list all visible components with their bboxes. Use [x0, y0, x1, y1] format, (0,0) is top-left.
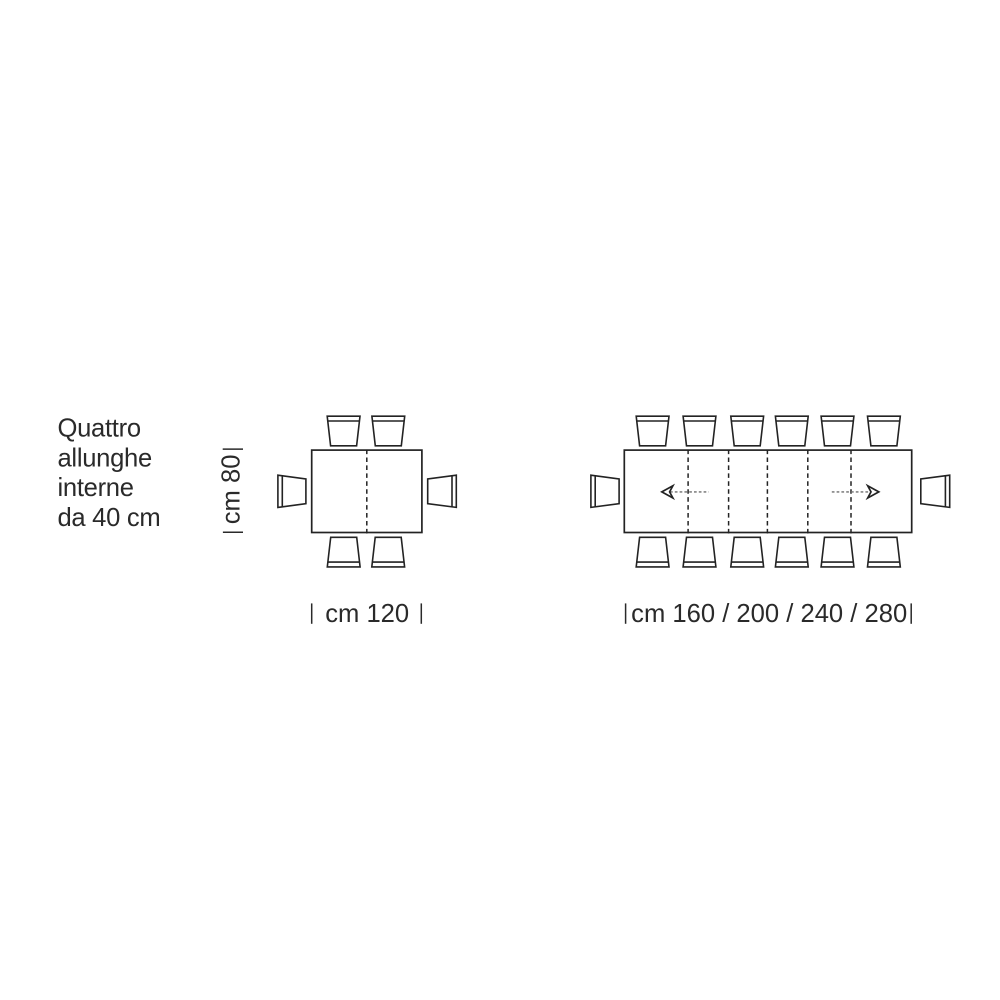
svg-text:da 40 cm: da 40 cm	[58, 504, 161, 532]
svg-text:Quattro: Quattro	[58, 415, 141, 443]
svg-text:interne: interne	[58, 474, 134, 502]
svg-text:allunghe: allunghe	[58, 445, 152, 473]
svg-text:cm 120: cm 120	[325, 600, 409, 628]
svg-text:cm 80: cm 80	[217, 455, 245, 525]
svg-text:cm 160 / 200 / 240 / 280: cm 160 / 200 / 240 / 280	[631, 600, 907, 628]
